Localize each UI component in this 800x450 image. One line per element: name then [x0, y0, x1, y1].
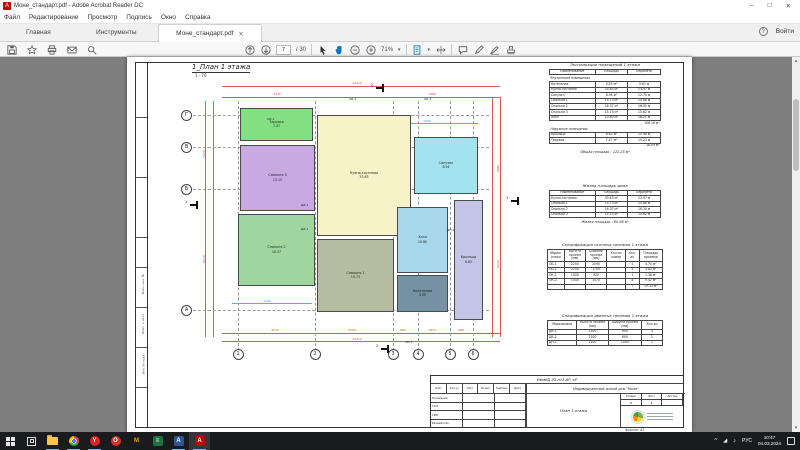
role-label: ГИП [431, 411, 463, 419]
margin-label-2: Инв. № подл. [141, 354, 145, 375]
document-code: ЕФмВД-03-п13-АР, кР [431, 376, 683, 384]
explorer-icon[interactable] [42, 432, 63, 450]
page-view-caret-icon[interactable]: ▾ [428, 47, 431, 53]
email-icon[interactable] [66, 44, 77, 55]
print-icon[interactable] [46, 44, 57, 55]
acrobat-icon[interactable]: A [189, 432, 210, 450]
column-header: Марки- ровка [548, 249, 565, 262]
title-block: ЕФмВД-03-п13-АР, кР Изм.Кол.учЛист№ док.… [430, 375, 684, 428]
dimension-label: 1500 [423, 119, 431, 123]
section-marker-stem [382, 84, 384, 92]
document-area: 1_План 1 этажа 1 : 70 Терраса7.47Спальня… [0, 57, 800, 432]
table-windows: Спецификация оконных проемов 1 этажаМарк… [547, 243, 663, 290]
room-терраса: Терраса7.47 [240, 108, 313, 141]
room-котельная: Котельная5.55 [397, 275, 448, 312]
room-area: 8.62 [465, 260, 472, 264]
grid-row-label: В [181, 142, 192, 153]
minimize-button[interactable]: – [750, 2, 754, 10]
change-header-cell: Подпись [494, 384, 510, 394]
grid-line [315, 101, 316, 351]
pencil-icon[interactable] [473, 44, 484, 55]
chrome-glyph [69, 436, 79, 446]
zoom-out-icon[interactable] [349, 44, 360, 55]
project-name: Индивидуальный жилой дом "Моне" [526, 384, 685, 394]
language-indicator[interactable]: РУС [742, 438, 752, 444]
select-tool-icon[interactable] [317, 44, 328, 55]
toolbar: / 30 71% ▾ ▾ [0, 42, 800, 57]
role-row: Начальник [431, 394, 526, 403]
section-marker-number: 1 [506, 196, 508, 200]
toolbar-separator [451, 44, 452, 55]
grid-row-label: Б [181, 184, 192, 195]
margin-tick [135, 177, 147, 178]
opening-tag: ОК-2 [424, 97, 431, 101]
signature-icon[interactable] [489, 44, 500, 55]
margin-tick [135, 267, 147, 268]
column-header: Высота проема (мм) [577, 320, 608, 329]
column-header: Маркировка [548, 320, 577, 329]
role-label: ГАП [431, 403, 463, 411]
margin-label-0: Взам. инв. № [141, 274, 145, 294]
pane [30, 439, 34, 443]
close-button[interactable]: ✕ [786, 2, 791, 10]
taskview-glyph [27, 437, 36, 446]
roles-table: НачальникГАПГИПРазработал [431, 394, 526, 427]
app-glyph: O [111, 436, 121, 446]
change-header-cell: Кол.уч [447, 384, 463, 394]
role-cell [495, 411, 527, 419]
opening-tag: ОБ-2 [349, 97, 356, 101]
room-area: 15.15 [273, 178, 282, 182]
star-icon[interactable] [26, 44, 37, 55]
section-marker-number: 2 [376, 344, 378, 348]
windows-glyph [6, 437, 15, 446]
action-center-icon[interactable] [787, 437, 795, 445]
tab-document-label: Моне_стандарт.pdf [176, 30, 233, 37]
section-marker-stem [387, 345, 389, 353]
room-area: 15.73 [351, 275, 360, 279]
room-area: 5.55 [419, 293, 426, 297]
margin-tick [135, 117, 147, 118]
role-cell [463, 411, 495, 419]
table-title: Жилая площадь дома [549, 184, 661, 189]
role-cell [495, 394, 527, 402]
sheet-name: План 1 этажа [526, 394, 621, 427]
tab-home[interactable]: Главная [26, 29, 51, 36]
role-label: Начальник [431, 394, 463, 402]
fit-width-icon[interactable] [435, 44, 446, 55]
role-row: ГАП [431, 403, 526, 412]
app-glyph: ≡ [153, 436, 163, 446]
stamp-icon[interactable] [505, 44, 516, 55]
change-header-cell: Лист [463, 384, 479, 394]
role-cell [495, 403, 527, 411]
table-title: Экспликация помещений 1 этажа [549, 63, 661, 68]
column-header: Ширина проема (мм) [608, 320, 641, 329]
room-холл: Холл10.80 [397, 207, 448, 273]
dark-orange-app-icon[interactable]: M [126, 432, 147, 450]
folder-glyph [47, 437, 58, 445]
menu-item-4[interactable]: Окно [161, 14, 176, 21]
dimension-line [205, 101, 206, 337]
grid-col-label: 2 [310, 349, 321, 360]
yandex-browser-icon[interactable]: Y [84, 432, 105, 450]
menu-bar: ФайлРедактированиеПросмотрПодписьОкноСпр… [0, 12, 800, 24]
section-marker-number: 2 [371, 83, 373, 87]
grid-col-label: 4 [413, 349, 424, 360]
app-glyph: A [195, 436, 205, 446]
room-санузел: Санузел8.94 [414, 137, 478, 194]
table-row: Спальня 315.15 м²15.62 м [550, 212, 661, 218]
previous-page-icon[interactable] [244, 44, 255, 55]
grid-row-label: А [181, 305, 192, 316]
toolbar-separator [311, 44, 312, 55]
table-doors: Спецификация дверных проемов 1 этажаМарк… [547, 314, 663, 346]
system-tray: ^ ◢ ♪ РУС 10:47 04.03.2024 [714, 432, 800, 450]
app-glyph: Y [90, 436, 100, 446]
room-спальня-2: Спальня 216.37 [238, 214, 315, 286]
dimension-label: 4470 [273, 92, 281, 96]
column-header: Высота проема (мм) [564, 249, 585, 262]
stage-block: Стадия Лист Листов Э 4 [621, 394, 683, 427]
room-спальня-3: Спальня 315.15 [240, 145, 315, 211]
pdf-page: 1_План 1 этажа 1 : 70 Терраса7.47Спальня… [127, 57, 692, 432]
dimension-line-cyan [232, 303, 312, 304]
dimension-line [500, 97, 501, 337]
dimension-line [492, 97, 493, 337]
tab-bar: Главная Инструменты Моне_стандарт.pdf ✕ … [0, 24, 800, 42]
table-total: Жилая площадь : 80.88 м² [549, 220, 661, 224]
volume-icon[interactable]: ♪ [733, 438, 736, 444]
table-title: Спецификация оконных проемов 1 этажа [547, 243, 663, 248]
opening-tag: ОК-1 [405, 340, 412, 344]
page-total-label: / 30 [296, 47, 306, 53]
column-header: Кол-во камер [607, 249, 626, 262]
app-glyph: A [174, 436, 184, 446]
company-logo [632, 411, 644, 423]
column-header: Кол-во [642, 320, 663, 329]
role-cell [463, 403, 495, 411]
sign-in-button[interactable]: Войти [776, 28, 794, 35]
grid-col-label: 1 [233, 349, 244, 360]
menu-item-3[interactable]: Подпись [126, 14, 152, 21]
dimension-label: 4270 [271, 328, 279, 332]
role-cell [463, 420, 495, 428]
section-marker-number: 1 [185, 200, 187, 204]
next-page-icon[interactable] [260, 44, 271, 55]
column-header: Площадь проемов [639, 249, 663, 262]
margin-tick [135, 387, 147, 388]
menu-item-2[interactable]: Просмотр [88, 14, 118, 21]
section-marker-stem [196, 201, 198, 209]
toolbar-separator [406, 44, 407, 55]
dimension-line [222, 86, 500, 87]
pane [6, 437, 10, 441]
margin-tick [135, 237, 147, 238]
opening-tag: ДН-1 [447, 228, 455, 232]
vertical-scrollbar[interactable]: ▲ ▼ [792, 57, 800, 432]
dimension-label: 1870 [428, 328, 436, 332]
dimension-label: 1880 [496, 165, 500, 173]
dimension-label: 1440 [263, 299, 271, 303]
pane [6, 442, 10, 446]
task-view-button[interactable] [21, 432, 42, 450]
section-marker-stem [517, 197, 519, 205]
grid-col-label: 3 [388, 349, 399, 360]
dimension-line [222, 341, 500, 342]
change-header-cell: Изм. [431, 384, 447, 394]
margin-tick [135, 347, 147, 348]
dimension-label: 660 [400, 328, 406, 332]
tab-close-icon[interactable]: ✕ [238, 30, 243, 38]
red-app-icon[interactable]: O [105, 432, 126, 450]
opening-tag: ОБ-1 [267, 117, 274, 121]
start-button[interactable] [0, 432, 21, 450]
maximize-button[interactable]: □ [768, 2, 772, 10]
chrome-icon[interactable] [63, 432, 84, 450]
table-explication: Экспликация помещений 1 этажаНаименовани… [549, 63, 661, 154]
zoom-in-icon[interactable] [365, 44, 376, 55]
comment-icon[interactable] [457, 44, 468, 55]
room-area: 7.47 [273, 124, 280, 128]
dimension-label: 9570 [202, 255, 206, 263]
role-row: ГИП [431, 411, 526, 420]
zoom-level[interactable]: 71% [381, 47, 393, 53]
role-cell [463, 394, 495, 402]
room-спальня-1: Спальня 115.73 [317, 239, 394, 312]
menu-item-5[interactable]: Справка [185, 14, 211, 21]
acrobat-app-icon: A [3, 2, 11, 10]
room-area: 16.37 [272, 250, 281, 254]
dimension-label: 12410 [352, 337, 362, 341]
tray-chevron-icon[interactable]: ^ [714, 438, 717, 444]
dimension-label: 7680 [428, 92, 436, 96]
change-header-cell: Дата [510, 384, 526, 394]
window-title: Моне_стандарт.pdf - Adobe Acrobat Reader… [14, 3, 750, 9]
room-area: 8.94 [442, 165, 449, 169]
room-крыльцо: Крыльцо8.62 [454, 200, 483, 320]
role-row: Разработал [431, 420, 526, 428]
hand-tool-icon[interactable] [333, 44, 344, 55]
table-living: Жилая площадь домаНаименованиеПлощадьПер… [549, 184, 661, 224]
dimension-label: 12410 [352, 81, 362, 85]
pane [11, 442, 15, 446]
grid-col-label: 6 [468, 349, 479, 360]
dimension-line [213, 101, 214, 337]
pane [11, 437, 15, 441]
green-app-icon[interactable]: ≡ [147, 432, 168, 450]
table-title: Спецификация дверных проемов 1 этажа [547, 314, 663, 319]
dimension-line [222, 333, 500, 334]
search-icon[interactable] [86, 44, 97, 55]
change-header-cell: № док. [478, 384, 494, 394]
column-header: Кол- во [626, 249, 639, 262]
opening-tag: ДВ-1 [301, 203, 308, 207]
grid-row-label: Г [181, 110, 192, 121]
window-titlebar: A Моне_стандарт.pdf - Adobe Acrobat Read… [0, 0, 800, 12]
dimension-label: 4190 [348, 328, 356, 332]
menu-item-1[interactable]: Редактирование [29, 14, 79, 21]
taskbar: YOM≡AA ^ ◢ ♪ РУС 10:47 04.03.2024 [0, 432, 800, 450]
room-area: 10.80 [418, 240, 427, 244]
grid-col-label: 5 [445, 349, 456, 360]
dimension-label: 5470 [202, 150, 206, 158]
table-total: Общая площадь : 122.25 м² [549, 150, 661, 154]
margin-label-1: Подп. и дата [141, 314, 145, 334]
table-row: ДН-1210010001 [548, 340, 663, 346]
dimension-label: 9130 [496, 260, 500, 268]
scroll-down-icon[interactable]: ▼ [792, 424, 800, 432]
tab-document[interactable]: Моне_стандарт.pdf ✕ [158, 24, 262, 42]
app-glyph: M [132, 436, 142, 446]
save-icon[interactable] [6, 44, 17, 55]
role-cell [495, 420, 527, 428]
column-header: Ширина проема (мм) [585, 249, 606, 262]
zoom-caret-icon[interactable]: ▾ [398, 47, 401, 53]
network-icon[interactable]: ◢ [723, 438, 727, 444]
clock[interactable]: 10:47 04.03.2024 [758, 435, 781, 446]
change-table-header: Изм.Кол.учЛист№ док.ПодписьДата [431, 384, 526, 394]
blue-app-icon[interactable]: A [168, 432, 189, 450]
scroll-up-icon[interactable]: ▲ [792, 57, 800, 65]
room-area: 33.63 [359, 175, 368, 179]
menu-item-0[interactable]: Файл [4, 14, 20, 21]
dimension-label: 660 [458, 328, 464, 332]
role-label: Разработал [431, 420, 463, 428]
help-icon[interactable]: ? [759, 27, 768, 36]
tab-tools[interactable]: Инструменты [96, 29, 137, 36]
margin-tick [135, 307, 147, 308]
scrollbar-thumb[interactable] [793, 99, 799, 171]
opening-tag: ДВ-1 [301, 227, 308, 231]
page-number-input[interactable] [276, 45, 291, 55]
dimension-line [222, 97, 500, 98]
tray-date: 04.03.2024 [758, 441, 781, 447]
page-view-icon[interactable] [412, 44, 423, 55]
company-text [647, 413, 673, 421]
